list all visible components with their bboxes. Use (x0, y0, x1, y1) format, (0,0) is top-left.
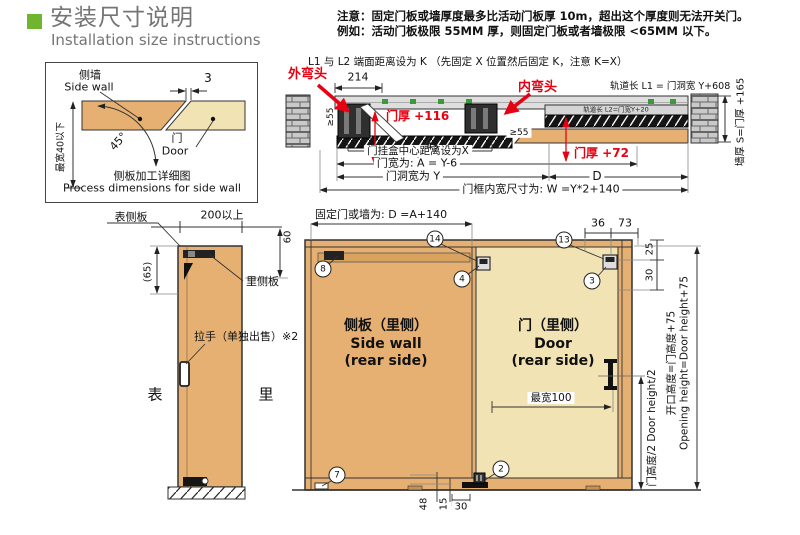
plan-title: L1 与 L2 端面距离设为 K （先固定 X 位置然后固定 K，注意 K=X） (308, 56, 627, 68)
side-wall-rear-en1: Side wall (350, 336, 421, 352)
outer-elbow-label: 外弯头 (288, 68, 327, 83)
max-width-40-label: 最宽40以下 (57, 122, 68, 172)
installation-diagram-page: 安装尺寸说明 Installation size instructions 注意… (0, 0, 800, 535)
callout-badge-2: 2 (493, 461, 510, 478)
callout-badge-3: 3 (584, 273, 601, 290)
min55-left-label: ≥55 (326, 108, 336, 127)
handle-note-label: 拉手（单独出售）※2 (194, 331, 298, 344)
dim-65: (65) (142, 262, 154, 283)
door-label-en: Door (162, 146, 188, 159)
brick-wall-right (691, 94, 718, 143)
panel-handle (180, 362, 189, 386)
detail-caption-en: Process dimensions for side wall (63, 183, 241, 196)
fixed-wall-bar (515, 129, 688, 143)
callout-badge-8: 8 (315, 261, 332, 278)
dim-36: 36 (591, 218, 605, 231)
page-subtitle: Installation size instructions (51, 32, 261, 49)
door-width-label: 门宽为: A = Y-6 (374, 158, 460, 171)
dim-60: 60 (282, 231, 294, 244)
side-wall-label-en: Side wall (64, 82, 113, 95)
opening-width-label: 门洞宽为 Y (383, 171, 443, 184)
note-line-2: 例如：活动门板极限 55MM 厚，则固定门板或者墙极限 <65MM 以下。 (337, 25, 716, 38)
opening-height-en: Opening height=Door height+75 (679, 276, 691, 450)
inner-elbow-label: 内弯头 (518, 81, 557, 96)
side-wall-rear-zh: 侧板（里侧） (344, 318, 428, 334)
wall-thickness-label: 墙厚 S=门厚 +165 (735, 78, 747, 167)
frame-width-label: 门框内宽尺寸为: W =Y*2+140 (459, 184, 622, 197)
callout-badge-14: 14 (427, 231, 444, 248)
rear-panel-label: 里侧板 (246, 276, 279, 289)
dim-30-bottom: 30 (452, 501, 471, 513)
door-rear-zh: 门（里侧） (518, 318, 588, 334)
dim-15: 15 (438, 498, 450, 511)
note-line-1: 注意：固定门板或墙厚度最多比活动门板厚 10m，超出这个厚度则无法开关门。 (337, 10, 749, 23)
callout-badge-13: 13 (556, 232, 573, 249)
gap-dim-3: 3 (204, 72, 212, 86)
dim-200-min: 200以上 (201, 210, 244, 223)
lock-hardware (324, 251, 344, 260)
max-100-label: 最宽100 (527, 392, 574, 404)
page-title: 安装尺寸说明 (50, 5, 194, 31)
door-thickness-72: 门厚 +72 (574, 147, 629, 161)
track-l2-label: 轨道长 L2=门宽Y+20 (583, 106, 648, 113)
door-thickness-116: 门厚 +116 (386, 110, 449, 124)
hanger-center-x-label: 门挂盒中心距离设为X (364, 145, 472, 157)
dim-48: 48 (418, 498, 430, 511)
callout-badge-4: 4 (454, 271, 471, 288)
dim-73: 73 (618, 218, 632, 231)
front-side-label: 表 (147, 386, 162, 403)
door-label-zh: 门 (172, 133, 183, 146)
opening-height-zh: 开口高度=门高度+75 (665, 311, 677, 415)
min55-right-label: ≥55 (507, 128, 532, 138)
front-panel-label: 表侧板 (115, 212, 148, 225)
inner-elbow-hanger (465, 104, 497, 133)
callout-badge-7: 7 (329, 467, 346, 484)
fixed-door-dim-label: 固定门或墙为: D =A+140 (315, 209, 447, 222)
green-bullet-icon (27, 14, 42, 29)
half-height-label: 门高度/2 Door height/2 (646, 369, 658, 486)
brick-wall-left (286, 95, 310, 147)
opening-height-label: 开口高度=门高度+75 Opening height=Door height+7… (665, 276, 690, 450)
dim-30-top: 30 (644, 269, 656, 282)
rear-side-label: 里 (258, 386, 273, 403)
track-l1-label: 轨道长 L1 = 门洞宽 Y+608 (610, 82, 730, 93)
door-rear-en2: (rear side) (511, 353, 594, 369)
dim-214: 214 (348, 72, 369, 85)
floor-hatch (168, 487, 245, 499)
door-rear-en1: Door (534, 336, 572, 352)
plan-angle-45: 45° (426, 141, 444, 153)
dim-25: 25 (644, 243, 656, 256)
floor-guide (474, 473, 485, 483)
side-wall-rear-en2: (rear side) (344, 353, 427, 369)
panel-top-hardware (183, 250, 215, 258)
